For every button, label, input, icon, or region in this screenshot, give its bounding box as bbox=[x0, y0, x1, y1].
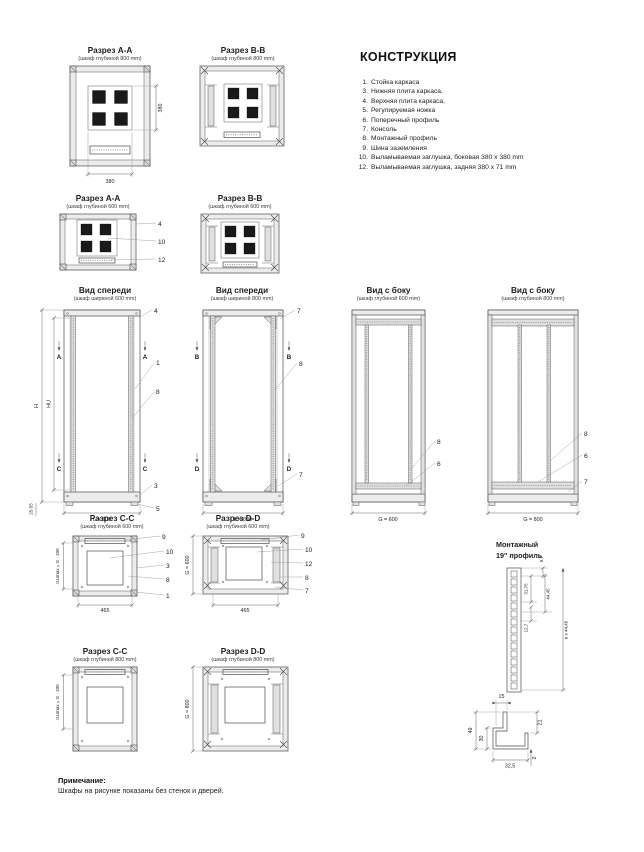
note-text: Шкафы на рисунке показаны без стенок и д… bbox=[58, 787, 224, 795]
dim-44-45: 44,45 bbox=[546, 588, 551, 600]
drawing-side-view-600: 8 6 G = 600 bbox=[340, 306, 478, 524]
callout-12: 12 bbox=[158, 257, 166, 264]
drawing-mounting-rail: 6,7 31,75 44,45 12,7 n x 44,45 bbox=[488, 540, 638, 692]
callout-1: 1 bbox=[166, 593, 170, 600]
vent-knockouts bbox=[221, 222, 259, 258]
callout-10: 10 bbox=[305, 547, 313, 554]
construction-item: 7.Консоль bbox=[352, 125, 637, 134]
cabinet-body bbox=[352, 310, 425, 506]
dim-g-label: G = 600 bbox=[185, 555, 191, 574]
figure-title: Вид с боку bbox=[340, 286, 437, 295]
callouts: 4 1 8 3 5 bbox=[132, 308, 160, 513]
figure-title: Разрез C-C bbox=[45, 647, 165, 656]
figure-subtitle: (шкаф шириной 800 mm) bbox=[183, 296, 301, 302]
section-markers: B B D D bbox=[195, 341, 292, 473]
figure-title: Вид спереди bbox=[183, 286, 301, 295]
figure-subtitle: (шкаф глубиной 600 mm) bbox=[50, 204, 146, 210]
dim-15: 15 bbox=[499, 694, 505, 700]
rail-strip bbox=[507, 568, 521, 692]
figure-section-cc-800: Разрез C-C (шкаф глубиной 800 mm) GUmax … bbox=[40, 647, 192, 787]
callout-1: 1 bbox=[156, 360, 160, 367]
figure-title: Вид спереди bbox=[45, 286, 165, 295]
item-number: 10. bbox=[352, 153, 368, 162]
item-text: Монтажный профиль bbox=[371, 134, 437, 143]
construction-heading: КОНСТРУКЦИЯ bbox=[360, 50, 457, 64]
section-marker-c-left: C bbox=[57, 466, 62, 473]
callout-7: 7 bbox=[584, 479, 588, 486]
rail-dimensions: 6,7 31,75 44,45 12,7 n x 44,45 bbox=[521, 555, 569, 691]
figure-section-cc-600: Разрез C-C (шкаф глубиной 600 mm) GUmax … bbox=[40, 514, 192, 638]
figure-title: Разрез C-C bbox=[52, 514, 172, 523]
figure-section-aa-800: Разрез A-A (шкаф глубиной 800 mm) 380 bbox=[55, 46, 181, 186]
item-number: 7. bbox=[352, 125, 368, 134]
drawing-section-dd-600: G = 600 465 9 10 12 8 7 bbox=[183, 532, 335, 642]
dimension-bottom: 465 bbox=[211, 594, 279, 614]
figure-front-view-600: Вид спереди (шкаф шириной 600 mm) H HU bbox=[28, 286, 182, 524]
vent-knockouts bbox=[224, 84, 262, 122]
item-text: Стойка каркаса bbox=[371, 78, 419, 87]
catalog-drawing-page: Разрез A-A (шкаф глубиной 800 mm) 380 bbox=[0, 0, 644, 852]
note-label: Примечание: bbox=[58, 776, 106, 785]
figure-section-aa-600: Разрез A-A (шкаф глубиной 600 mm) 4 10 1… bbox=[50, 194, 190, 290]
construction-item: 4.Верхняя плита каркаса, bbox=[352, 97, 637, 106]
construction-list: 1.Стойка каркаса 3.Нижняя плита каркаса,… bbox=[352, 78, 637, 172]
dimension-gu: GUmax = G - 100 bbox=[55, 673, 73, 730]
drawing-profile-cross-section: 15 21 49 30 32,5 2 bbox=[460, 688, 635, 800]
item-number: 4. bbox=[352, 97, 368, 106]
dim-21: 21 bbox=[538, 720, 544, 726]
construction-item: 5.Регулируемая ножка bbox=[352, 106, 637, 115]
dim-2: 2 bbox=[532, 757, 538, 760]
dim-g-label: G = 800 bbox=[523, 517, 542, 523]
dimension-g: G = 600 bbox=[185, 534, 203, 595]
callout-8: 8 bbox=[437, 439, 441, 446]
dim-n-44-45: n x 44,45 bbox=[564, 620, 569, 639]
construction-item: 10.Выламываемая заглушка, боковая 380 x … bbox=[352, 153, 637, 162]
dimension-g: G = 800 bbox=[185, 665, 203, 752]
dim-12-7: 12,7 bbox=[524, 623, 529, 632]
figure-side-view-800: Вид с боку (шкаф глубиной 800 mm) 8 6 7 bbox=[478, 286, 630, 524]
item-number: 8. bbox=[352, 134, 368, 143]
construction-item: 8.Монтажный профиль bbox=[352, 134, 637, 143]
figure-subtitle: (шкаф глубиной 800 mm) bbox=[45, 657, 165, 663]
item-text: Регулируемая ножка bbox=[371, 106, 435, 115]
item-number: 12. bbox=[352, 163, 368, 172]
figure-subtitle: (шкаф глубиной 800 mm) bbox=[183, 657, 303, 663]
callout-8: 8 bbox=[166, 577, 170, 584]
item-text: Верхняя плита каркаса, bbox=[371, 97, 445, 106]
figure-subtitle: (шкаф глубиной 600 mm) bbox=[190, 204, 290, 210]
callout-7: 7 bbox=[305, 588, 309, 595]
figure-mounting-rail-19: Монтажный 19" профиль 6,7 31,75 bbox=[488, 540, 638, 692]
vent-knockouts bbox=[88, 86, 132, 130]
section-marker-b-right: B bbox=[287, 354, 292, 361]
profile-contour bbox=[493, 712, 528, 749]
figure-subtitle: (шкаф глубиной 600 mm) bbox=[340, 296, 437, 302]
cabinet-body bbox=[64, 310, 140, 506]
section-marker-a-right: A bbox=[143, 354, 148, 361]
construction-item: 1.Стойка каркаса bbox=[352, 78, 637, 87]
figure-subtitle: (шкаф глубиной 800 mm) bbox=[190, 56, 296, 62]
callout-8: 8 bbox=[584, 431, 588, 438]
callout-8: 8 bbox=[305, 575, 309, 582]
dim-30: 30 bbox=[479, 736, 485, 742]
item-number: 3. bbox=[352, 87, 368, 96]
callout-9: 9 bbox=[162, 534, 166, 541]
dim-h-label: H bbox=[34, 404, 40, 408]
callout-7-top: 7 bbox=[297, 308, 301, 315]
callout-8: 8 bbox=[156, 389, 160, 396]
callout-3: 3 bbox=[166, 563, 170, 570]
section-marker-d-right: D bbox=[287, 466, 292, 473]
figure-subtitle: (шкаф глубиной 800 mm) bbox=[478, 296, 588, 302]
item-number: 5. bbox=[352, 106, 368, 115]
item-number: 1. bbox=[352, 78, 368, 87]
item-text: Выламываемая заглушка, боковая 380 x 380… bbox=[371, 153, 524, 162]
callout-6: 6 bbox=[584, 453, 588, 460]
figure-title: Разрез A-A bbox=[50, 194, 146, 203]
figure-side-view-600: Вид с боку (шкаф глубиной 600 mm) 8 6 G … bbox=[340, 286, 478, 524]
figure-title: Разрез B-B bbox=[190, 194, 290, 203]
figure-subtitle: (шкаф глубиной 600 mm) bbox=[52, 524, 172, 530]
dim-6-7: 6,7 bbox=[539, 555, 544, 562]
figure-subtitle: (шкаф глубиной 800 mm) bbox=[55, 56, 165, 62]
figure-subtitle: (шкаф шириной 600 mm) bbox=[45, 296, 165, 302]
construction-item: 12.Выламываемая заглушка, задняя 380 x 7… bbox=[352, 163, 637, 172]
item-text: Консоль bbox=[371, 125, 397, 134]
item-text: Выламываемая заглушка, задняя 380 x 71 m… bbox=[371, 163, 516, 172]
figure-subtitle: (шкаф глубиной 600 mm) bbox=[183, 524, 293, 530]
callout-12: 12 bbox=[305, 561, 313, 568]
cabinet-frame bbox=[73, 536, 137, 596]
dim-hu-label: HU bbox=[47, 400, 53, 408]
section-marker-a-left: A bbox=[57, 354, 62, 361]
section-marker-b-left: B bbox=[195, 354, 200, 361]
figure-title: Разрез D-D bbox=[183, 514, 293, 523]
dim-bottom-label: 380 bbox=[106, 179, 115, 185]
dim-g-label: G = 600 bbox=[378, 517, 397, 523]
profile-dimensions: 15 21 49 30 32,5 2 bbox=[468, 694, 544, 770]
drawing-section-bb-600 bbox=[190, 212, 332, 294]
drawing-section-cc-600: GUmax = G - 100 465 9 10 3 8 1 bbox=[40, 532, 192, 638]
figure-section-dd-800: Разрез D-D (шкаф глубиной 800 mm) bbox=[183, 647, 335, 792]
callout-5: 5 bbox=[156, 506, 160, 513]
callout-10: 10 bbox=[158, 239, 166, 246]
item-number: 9. bbox=[352, 144, 368, 153]
callout-8: 8 bbox=[299, 361, 303, 368]
section-marker-c-right: C bbox=[143, 466, 148, 473]
dim-32-5: 32,5 bbox=[505, 764, 516, 770]
section-marker-d-left: D bbox=[195, 466, 200, 473]
callout-4: 4 bbox=[158, 221, 162, 228]
dimension-foot: 25-55 bbox=[29, 503, 37, 516]
figure-title: Вид с боку bbox=[478, 286, 588, 295]
dimension-depth: G = 600 bbox=[350, 504, 426, 523]
item-number: 6. bbox=[352, 116, 368, 125]
construction-item: 6.Поперечный профиль bbox=[352, 116, 637, 125]
figure-title: Разрез B-B bbox=[190, 46, 296, 55]
item-text: Нижняя плита каркаса, bbox=[371, 87, 443, 96]
drawing-section-dd-800: G = 800 bbox=[183, 665, 335, 792]
dim-465-label: 465 bbox=[241, 608, 250, 614]
dim-31-75: 31,75 bbox=[524, 583, 529, 595]
cabinet-frame bbox=[73, 667, 137, 751]
dimension-gu: GUmax = G - 100 bbox=[55, 541, 73, 590]
callout-4: 4 bbox=[154, 308, 158, 315]
item-text: Шина заземления bbox=[371, 144, 427, 153]
callout-9: 9 bbox=[301, 533, 305, 540]
figure-profile-cross-section: 15 21 49 30 32,5 2 bbox=[460, 688, 635, 800]
figure-title: Разрез A-A bbox=[55, 46, 165, 55]
dim-gu-label: GUmax = G - 100 bbox=[55, 548, 60, 584]
item-text: Поперечный профиль bbox=[371, 116, 439, 125]
construction-item: 9.Шина заземления bbox=[352, 144, 637, 153]
dim-gu-label: GUmax = G - 100 bbox=[55, 684, 60, 720]
dim-foot-label: 25-55 bbox=[29, 503, 34, 515]
dim-g-label: G = 800 bbox=[185, 699, 191, 718]
figure-title: Разрез D-D bbox=[183, 647, 303, 656]
callout-10: 10 bbox=[166, 549, 174, 556]
drawing-section-aa-800: 380 380 bbox=[55, 64, 181, 186]
figure-section-bb-600: Разрез B-B (шкаф глубиной 600 mm) bbox=[190, 194, 332, 290]
drawing-section-cc-800: GUmax = G - 100 bbox=[40, 665, 192, 787]
dim-465-label: 465 bbox=[101, 608, 110, 614]
drawing-front-view-600: H HU A A C C 4 1 8 3 5 bbox=[28, 306, 182, 524]
cabinet-body bbox=[488, 310, 578, 506]
drawing-side-view-800: 8 6 7 G = 800 bbox=[478, 306, 630, 524]
construction-item: 3.Нижняя плита каркаса, bbox=[352, 87, 637, 96]
dimension-depth: G = 800 bbox=[486, 504, 579, 523]
callout-7-bottom: 7 bbox=[299, 472, 303, 479]
dim-49: 49 bbox=[468, 728, 474, 734]
cabinet-body bbox=[203, 310, 283, 506]
figure-section-bb-800: Разрез B-B (шкаф глубиной 800 mm) bbox=[190, 46, 314, 186]
callout-6: 6 bbox=[437, 461, 441, 468]
callout-3: 3 bbox=[154, 483, 158, 490]
dim-side-label: 380 bbox=[158, 104, 164, 113]
drawing-front-view-800: B B D D 7 8 7 L = 800 bbox=[183, 306, 337, 524]
drawing-section-bb-800 bbox=[190, 64, 314, 169]
figure-front-view-800: Вид спереди (шкаф шириной 800 mm) B B bbox=[183, 286, 337, 524]
drawing-section-aa-600: 4 10 12 bbox=[50, 212, 190, 292]
figure-section-dd-600: Разрез D-D (шкаф глубиной 600 mm) bbox=[183, 514, 335, 642]
